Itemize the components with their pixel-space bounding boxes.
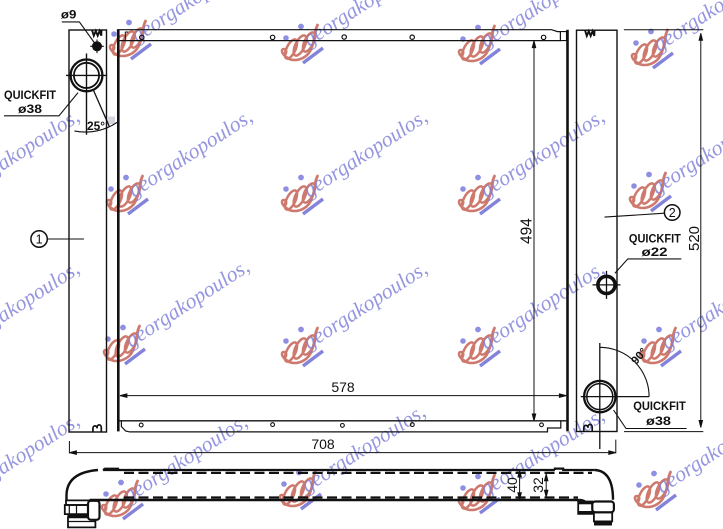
svg-text:QUICKFIT: QUICKFIT bbox=[629, 232, 682, 246]
svg-text:ø9: ø9 bbox=[61, 7, 77, 21]
svg-text:40: 40 bbox=[504, 477, 520, 493]
svg-text:ø22: ø22 bbox=[642, 245, 668, 259]
svg-text:708: 708 bbox=[311, 436, 335, 452]
svg-text:ø38: ø38 bbox=[646, 414, 671, 428]
svg-text:578: 578 bbox=[331, 379, 355, 395]
svg-text:494: 494 bbox=[519, 218, 536, 244]
svg-text:32: 32 bbox=[530, 477, 546, 493]
svg-text:25°: 25° bbox=[87, 121, 105, 133]
svg-text:520: 520 bbox=[686, 226, 703, 251]
svg-text:2: 2 bbox=[669, 206, 676, 220]
svg-text:ø38: ø38 bbox=[18, 102, 42, 116]
svg-text:1: 1 bbox=[36, 233, 43, 247]
svg-text:QUICKFIT: QUICKFIT bbox=[4, 88, 57, 102]
svg-text:QUICKFIT: QUICKFIT bbox=[633, 399, 686, 413]
